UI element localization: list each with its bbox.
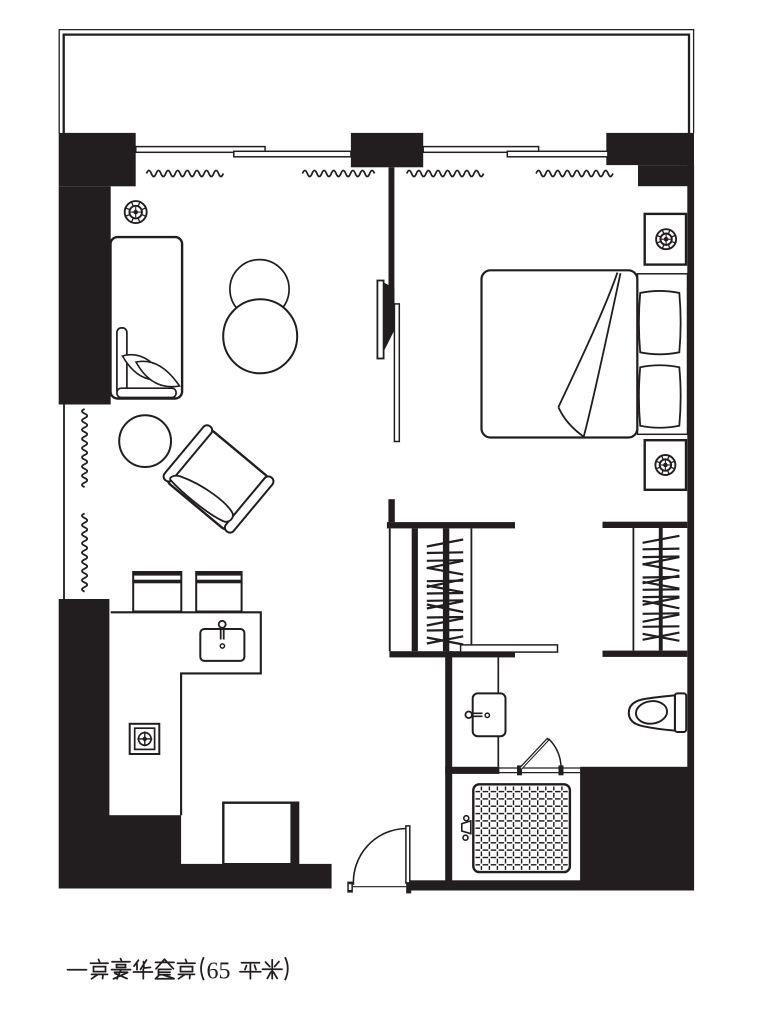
- svg-text:65: 65: [207, 959, 231, 985]
